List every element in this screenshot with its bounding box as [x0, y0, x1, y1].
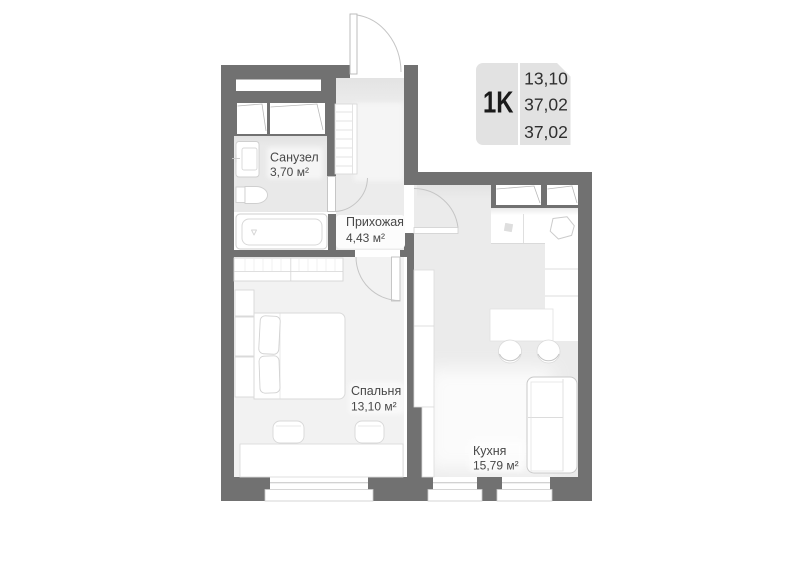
svg-text:15,79 м²: 15,79 м²: [473, 459, 519, 473]
svg-text:37,02: 37,02: [524, 122, 568, 142]
svg-text:13,10: 13,10: [524, 69, 568, 89]
svg-text:4,43 м²: 4,43 м²: [346, 231, 385, 245]
svg-text:1K: 1K: [483, 85, 514, 120]
svg-text:37,02: 37,02: [524, 95, 568, 115]
svg-text:3,70 м²: 3,70 м²: [270, 165, 309, 179]
svg-text:Прихожая: Прихожая: [346, 215, 404, 229]
svg-text:Спальня: Спальня: [351, 384, 401, 398]
svg-text:Кухня: Кухня: [473, 444, 506, 458]
svg-text:Санузел: Санузел: [270, 151, 319, 165]
svg-text:13,10 м²: 13,10 м²: [351, 399, 397, 413]
